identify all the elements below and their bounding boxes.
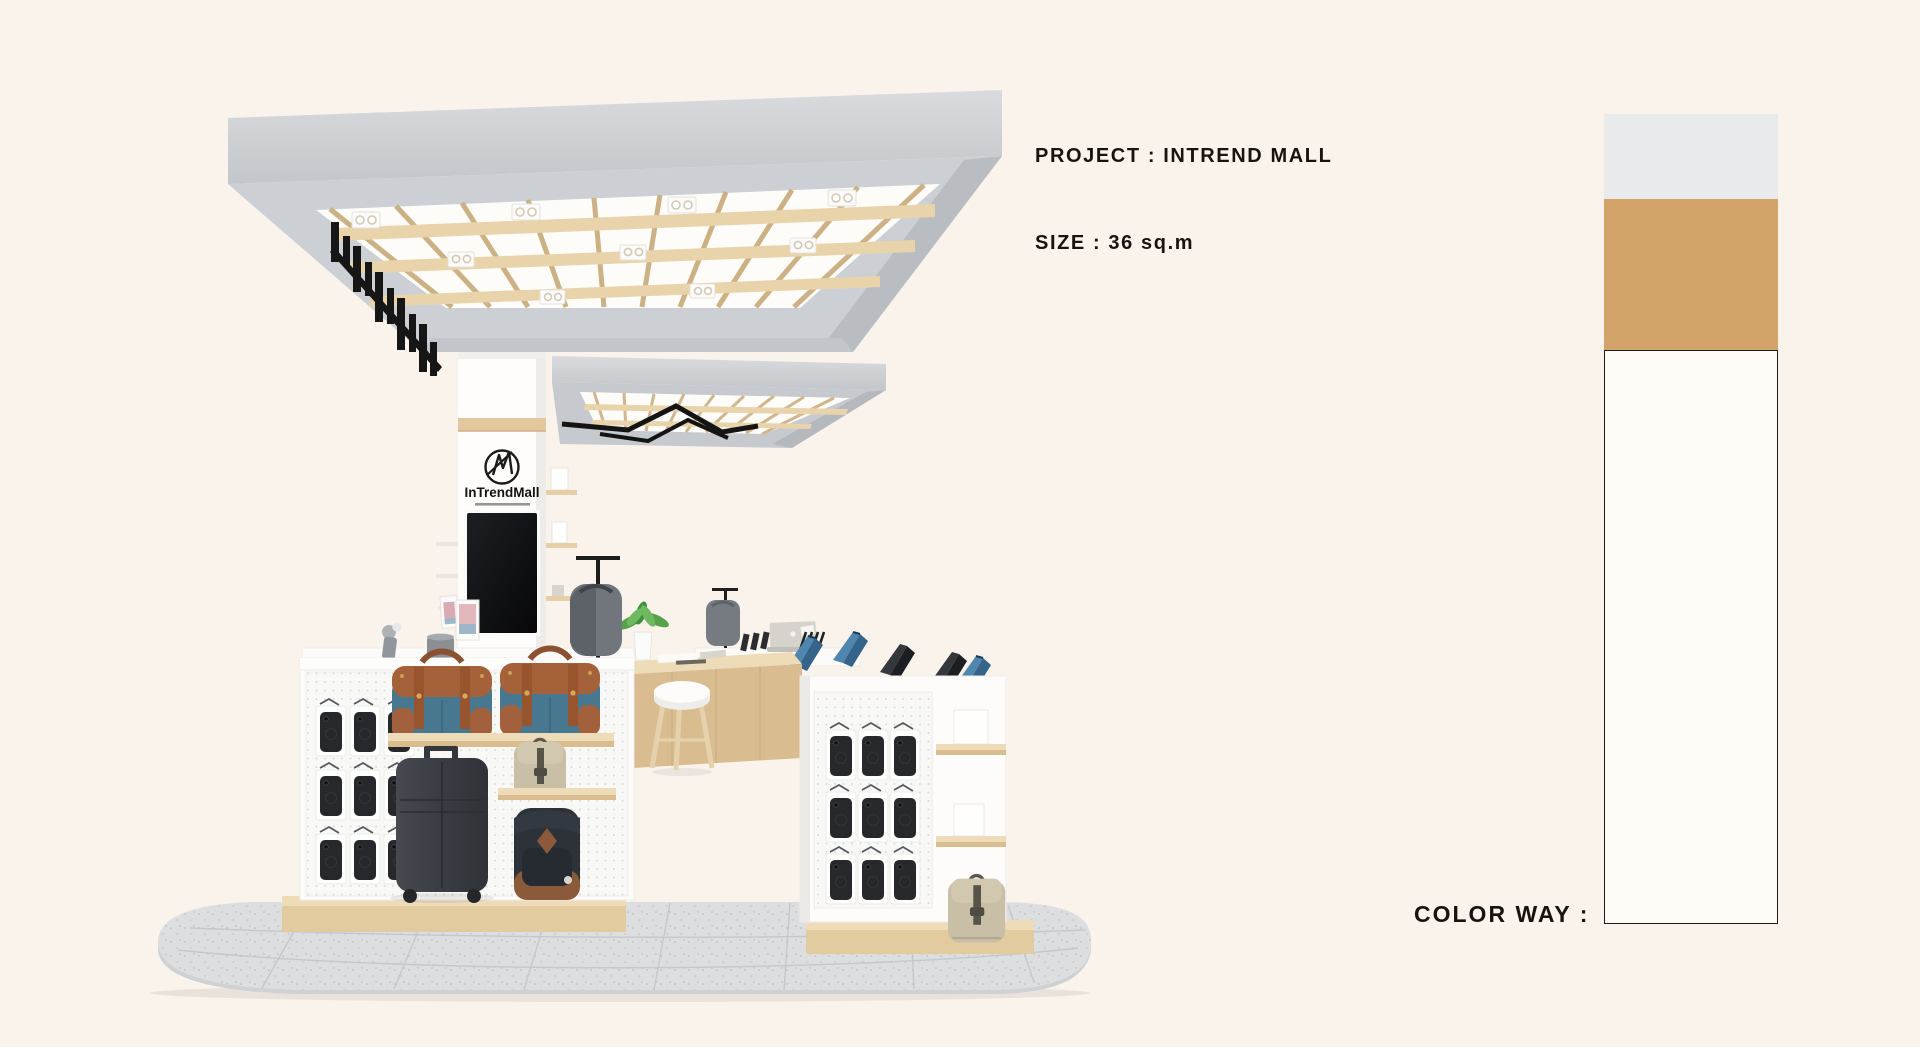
secondary-canopy [552, 356, 886, 448]
size-label: SIZE : 36 sq.m [1035, 229, 1332, 258]
suitcase [390, 746, 494, 903]
colorway-swatches [1604, 114, 1778, 924]
khaki-backpack-floor [948, 876, 1005, 943]
colorway-label: COLOR WAY : [1414, 901, 1589, 928]
navy-backpack [514, 808, 580, 900]
swatch-camel-wood [1604, 199, 1778, 350]
phone-risers [740, 632, 769, 652]
backpack-on-stand [570, 556, 622, 662]
project-annotations: PROJECT : INTREND MALL SIZE : 36 sq.m [1035, 84, 1332, 316]
swatch-concrete-gray [1604, 114, 1778, 199]
column-right-shelves [546, 468, 577, 601]
right-display-unit [800, 676, 1034, 954]
kiosk-logo-text: InTrendMall [464, 485, 539, 500]
project-label: PROJECT : INTREND MALL [1035, 142, 1332, 171]
main-canopy [228, 90, 1002, 352]
swatch-off-white [1604, 350, 1778, 924]
small-backpack-on-stand [706, 588, 740, 648]
pegboard-phones-right [826, 723, 920, 904]
left-display-unit [282, 649, 634, 933]
design-board: InTrendMall [0, 0, 1920, 1047]
